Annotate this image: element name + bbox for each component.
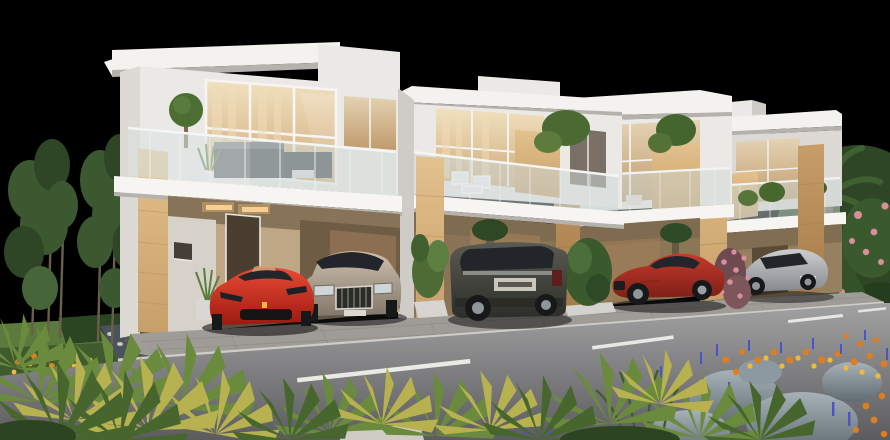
townhouse-scene <box>0 0 890 440</box>
tall-plant-pot <box>411 234 449 318</box>
window-small <box>174 242 192 260</box>
render-canvas <box>0 0 890 440</box>
dark-suv <box>448 242 572 329</box>
